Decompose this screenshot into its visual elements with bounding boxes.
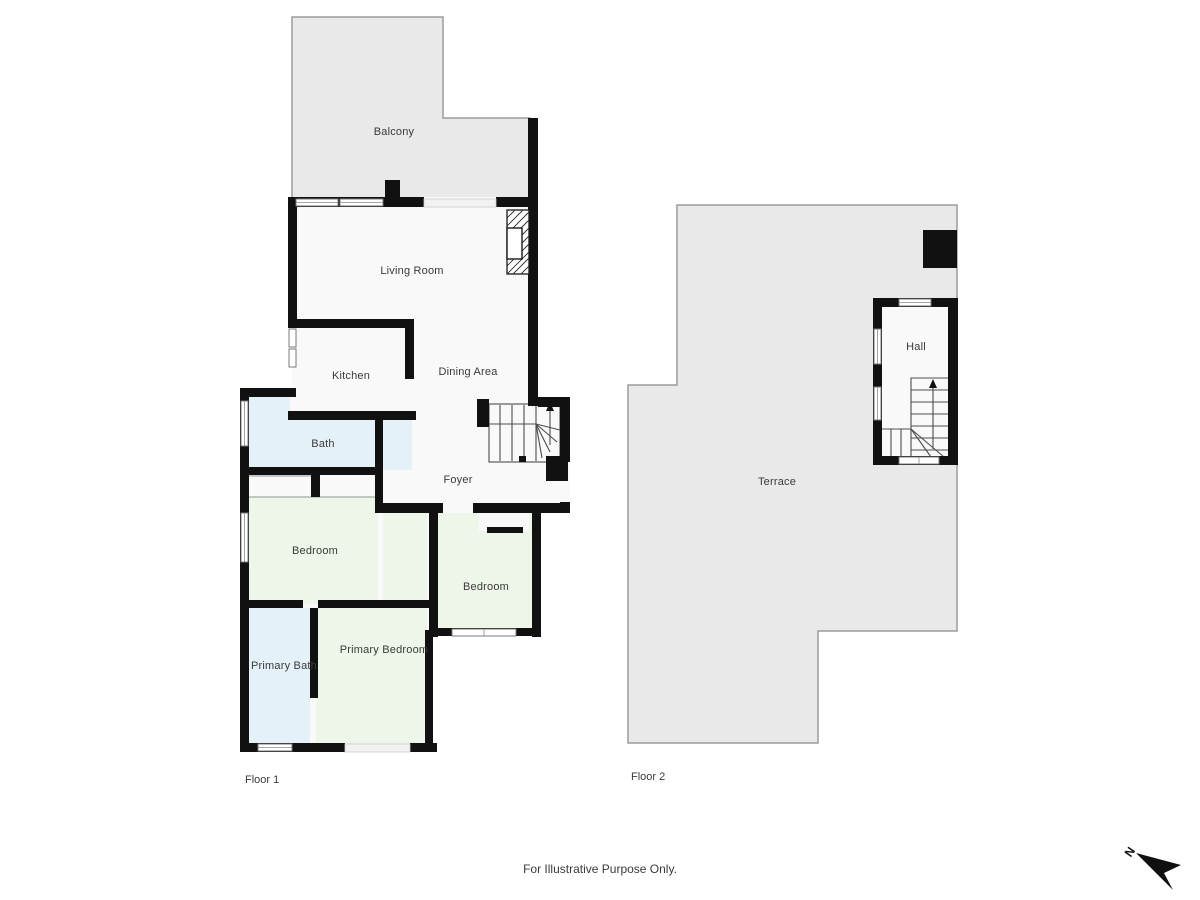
room-label-bedroom-2: Bedroom <box>463 581 509 593</box>
floorplan-page: N Floor 1BalconyLiving RoomKitchenDining… <box>0 0 1200 900</box>
room-label-bath: Bath <box>311 438 334 450</box>
chimney-block <box>923 230 957 268</box>
room-label-bedroom: Bedroom <box>292 545 338 557</box>
floor1-label: Floor 1 <box>245 774 279 786</box>
disclaimer-caption: For Illustrative Purpose Only. <box>0 862 1200 876</box>
compass-n-label: N <box>1122 844 1138 859</box>
room-label-foyer: Foyer <box>443 474 472 486</box>
fireplace-icon <box>507 210 529 274</box>
room-label-dining-area: Dining Area <box>438 366 497 378</box>
room-label-primary-bath: Primary Bath <box>251 660 317 672</box>
floor2-plan <box>628 205 958 743</box>
terrace-area <box>628 205 957 743</box>
primary-bath-area <box>244 608 310 744</box>
balcony-area <box>292 17 530 205</box>
room-label-balcony: Balcony <box>374 126 415 138</box>
floor2-label: Floor 2 <box>631 771 665 783</box>
room-label-hall: Hall <box>906 341 926 353</box>
room-label-kitchen: Kitchen <box>332 370 370 382</box>
room-label-living-room: Living Room <box>380 265 443 277</box>
room-label-primary-bedroom: Primary Bedroom <box>340 644 429 656</box>
room-label-terrace: Terrace <box>758 476 796 488</box>
floorplan-canvas: N <box>0 0 1200 900</box>
